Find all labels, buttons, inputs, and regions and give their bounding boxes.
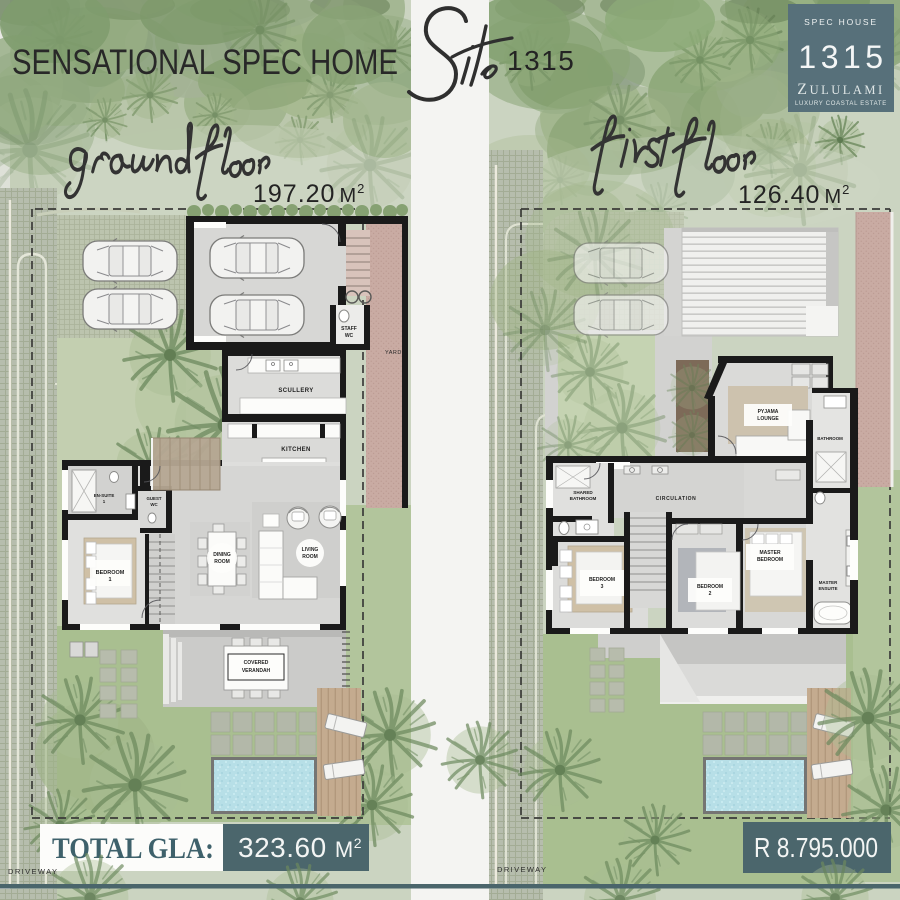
svg-text:MASTER: MASTER [759,550,781,556]
svg-text:EN-SUITE: EN-SUITE [94,493,115,498]
svg-text:MASTER: MASTER [819,580,838,585]
svg-text:ROOM: ROOM [214,559,230,565]
svg-text:CIRCULATION: CIRCULATION [656,496,697,502]
svg-text:LUXURY COASTAL ESTATE: LUXURY COASTAL ESTATE [795,101,887,107]
svg-text:BEDROOM: BEDROOM [697,584,723,590]
svg-text:323.60 M2: 323.60 M2 [238,832,362,863]
svg-text:VERANDAH: VERANDAH [242,668,271,674]
svg-text:BEDROOM: BEDROOM [96,570,125,576]
svg-text:STAFF: STAFF [341,326,357,332]
svg-text:SENSATIONAL SPEC HOME: SENSATIONAL SPEC HOME [12,43,398,82]
svg-text:BEDROOM: BEDROOM [757,557,783,563]
svg-text:WC: WC [150,502,158,507]
svg-text:GUEST: GUEST [146,496,161,501]
svg-text:ENSUITE: ENSUITE [818,586,837,591]
svg-text:DRIVEWAY: DRIVEWAY [497,865,547,874]
svg-text:3: 3 [601,584,604,590]
svg-text:1315: 1315 [507,45,575,76]
svg-text:197.20M2: 197.20M2 [253,180,365,208]
svg-text:SPEC HOUSE: SPEC HOUSE [804,17,878,27]
svg-text:LOUNGE: LOUNGE [757,416,779,422]
svg-text:DINING: DINING [213,552,231,558]
svg-text:SCULLERY: SCULLERY [278,388,313,394]
svg-text:1315: 1315 [798,39,887,75]
svg-text:ZULULAMI: ZULULAMI [797,81,884,98]
svg-text:1: 1 [108,577,111,583]
svg-text:SHARED: SHARED [573,490,593,495]
svg-text:126.40M2: 126.40M2 [738,181,850,209]
svg-text:2: 2 [709,591,712,597]
svg-text:BATHROOM: BATHROOM [817,436,843,441]
svg-text:DRIVEWAY: DRIVEWAY [8,867,58,876]
svg-text:BATHROOM: BATHROOM [570,496,597,501]
svg-text:COVERED: COVERED [244,660,269,666]
svg-text:WC: WC [345,333,354,339]
svg-text:KITCHEN: KITCHEN [281,447,310,453]
svg-text:ROOM: ROOM [302,554,318,560]
svg-text:PYJAMA: PYJAMA [758,409,779,415]
svg-text:R 8.795.000: R 8.795.000 [754,832,878,863]
svg-text:LIVING: LIVING [302,547,319,553]
svg-text:YARD: YARD [385,350,402,356]
svg-text:BEDROOM: BEDROOM [589,577,615,583]
